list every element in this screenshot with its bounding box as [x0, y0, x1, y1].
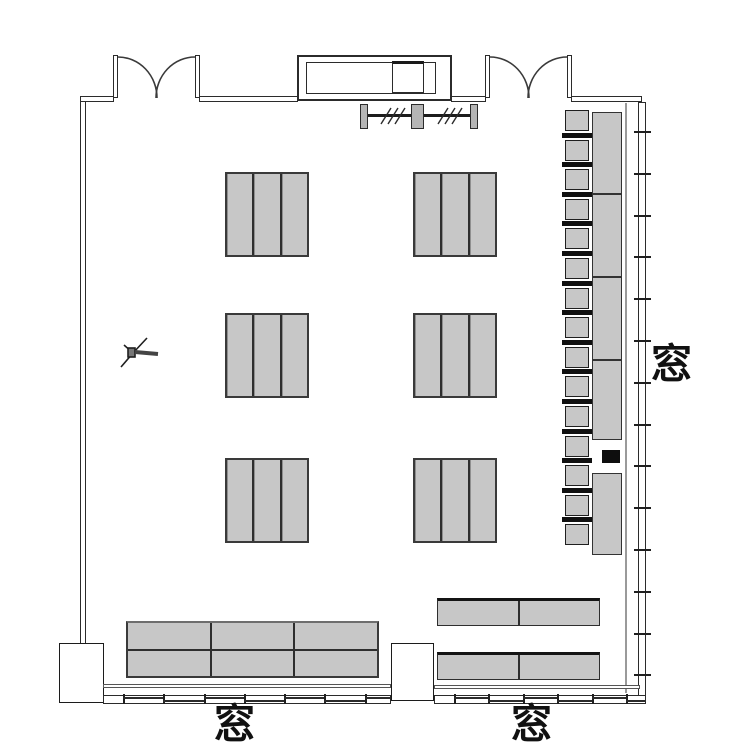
table-cell: [212, 623, 294, 649]
window-sash-line: [284, 697, 324, 699]
window-mullion-tick: [634, 298, 651, 300]
desk-group: [413, 458, 497, 543]
window-mullion-tick: [634, 382, 651, 384]
desk: [254, 315, 279, 396]
chair-seat: [565, 199, 589, 220]
chair-seat: [565, 406, 589, 427]
desk: [442, 460, 467, 541]
window-counter-lower: [592, 473, 622, 555]
counter-segment: [593, 474, 621, 554]
window-sash-line: [244, 700, 284, 702]
door-left-leaf-a: [113, 55, 118, 98]
chair-seat: [565, 436, 589, 457]
door-swing-arc: [490, 57, 529, 98]
chair-seat: [565, 110, 589, 131]
table-cell: [295, 623, 377, 649]
window-mullion-tick: [634, 173, 651, 175]
door-right-leaf-a: [485, 55, 490, 98]
desk: [254, 174, 279, 255]
window-mullion-tick: [634, 215, 651, 217]
window-mullion-tick: [634, 131, 651, 133]
window-sash-line: [324, 700, 364, 702]
window-right-band: [638, 102, 646, 703]
desk-group: [225, 172, 309, 257]
chair-seat: [565, 524, 589, 545]
chair-backrest: [562, 310, 592, 315]
chair-backrest: [562, 281, 592, 286]
window-label-bottom-left: 窓: [214, 704, 255, 745]
chair-backrest: [562, 369, 592, 374]
partition-post-left: [360, 104, 368, 129]
desk-group: [413, 172, 497, 257]
window-sash-line: [123, 697, 163, 699]
chair-backrest: [562, 517, 592, 522]
door-left-leaf-b: [195, 55, 200, 98]
door-swing-arc: [156, 57, 195, 98]
window-mullion-tick: [634, 465, 651, 467]
desk-group: [413, 313, 497, 398]
counter-segment: [593, 361, 621, 439]
chair-backrest: [562, 340, 592, 345]
window-mullion-tick: [454, 694, 456, 704]
table-cell: [128, 623, 210, 649]
door-swing-arc: [118, 57, 157, 98]
chair-seat: [565, 465, 589, 486]
desk: [254, 460, 279, 541]
window-sash-line: [454, 697, 488, 699]
wall-top-seg4: [571, 96, 642, 102]
chair-seat: [565, 140, 589, 161]
desk-group: [225, 458, 309, 543]
partition-post-mid: [411, 104, 424, 129]
table-cell: [520, 655, 600, 679]
pillar-bottom-middle: [391, 643, 434, 701]
desk: [415, 315, 440, 396]
desk: [442, 315, 467, 396]
projector-icon: [128, 348, 135, 357]
window-sash-line: [204, 697, 244, 699]
window-mullion-tick: [488, 694, 490, 704]
window-mullion-tick: [634, 424, 651, 426]
chair-seat: [565, 169, 589, 190]
right-wall-inner-line: [625, 103, 627, 693]
table-cell: [128, 651, 210, 677]
window-bottom-left-sill: [103, 684, 391, 688]
bottom-right-table-2: [437, 652, 600, 680]
window-label-right: 窓: [651, 344, 692, 385]
chair-seat: [565, 228, 589, 249]
desk: [227, 315, 252, 396]
window-mullion-tick: [123, 694, 125, 704]
chair-backrest: [562, 458, 592, 463]
wall-top-seg3: [451, 96, 486, 102]
window-mullion-tick: [244, 694, 246, 704]
window-mullion-tick: [634, 507, 651, 509]
door-right-leaf-b: [567, 55, 572, 98]
window-mullion-tick: [634, 591, 651, 593]
desk: [470, 460, 495, 541]
window-mullion-tick: [324, 694, 326, 704]
desk: [282, 174, 307, 255]
window-sash-line: [592, 697, 626, 699]
wall-top-seg2: [199, 96, 298, 102]
wall-top-seg1: [80, 96, 114, 102]
table-cell: [438, 601, 518, 625]
table-cell: [438, 655, 518, 679]
window-sash-line: [365, 697, 391, 699]
window-mullion-tick: [592, 694, 594, 704]
counter-segment: [593, 278, 621, 359]
table-cell: [295, 651, 377, 677]
chair-backrest: [562, 399, 592, 404]
window-sash-line: [163, 700, 203, 702]
desk: [227, 174, 252, 255]
window-label-bottom-right: 窓: [511, 704, 552, 745]
chair-backrest: [562, 221, 592, 226]
desk: [415, 174, 440, 255]
partition-post-right: [470, 104, 478, 129]
desk: [282, 315, 307, 396]
window-mullion-tick: [204, 694, 206, 704]
chair-seat: [565, 288, 589, 309]
desk-group: [225, 313, 309, 398]
window-mullion-tick: [634, 633, 651, 635]
door-swing-arc: [528, 57, 567, 98]
window-mullion-tick: [163, 694, 165, 704]
counter-segment: [593, 113, 621, 193]
floor-plan: 窓 窓 窓: [0, 0, 750, 750]
window-sash-line: [488, 700, 522, 702]
chair-seat: [565, 317, 589, 338]
alcove-cabinet: [392, 61, 424, 93]
table-cell: [212, 651, 294, 677]
window-mullion-tick: [523, 694, 525, 704]
pillar-bottom-left: [59, 643, 104, 703]
chair-backrest: [562, 429, 592, 434]
window-mullion-tick: [634, 549, 651, 551]
window-mullion-tick: [634, 340, 651, 342]
window-sash-line: [626, 700, 646, 702]
chair-seat: [565, 495, 589, 516]
window-sash-line: [557, 700, 591, 702]
projector-icon: [121, 338, 147, 367]
projector-icon: [135, 352, 158, 354]
chair-backrest: [562, 192, 592, 197]
window-sash-line: [523, 697, 557, 699]
window-counter-upper: [592, 112, 622, 440]
desk: [442, 174, 467, 255]
window-mullion-tick: [284, 694, 286, 704]
equipment-box: [602, 450, 620, 463]
chair-seat: [565, 376, 589, 397]
table-cell: [520, 601, 600, 625]
counter-segment: [593, 195, 621, 276]
window-mullion-tick: [634, 256, 651, 258]
window-bottom-right-sill: [434, 685, 640, 689]
desk: [282, 460, 307, 541]
window-mullion-tick: [634, 674, 651, 676]
desk: [415, 460, 440, 541]
back-table-block: [126, 621, 379, 678]
chair-seat: [565, 258, 589, 279]
window-mullion-tick: [365, 694, 367, 704]
chair-backrest: [562, 133, 592, 138]
chair-backrest: [562, 162, 592, 167]
desk: [227, 460, 252, 541]
window-mullion-tick: [557, 694, 559, 704]
chair-seat: [565, 347, 589, 368]
bottom-right-table-1: [437, 598, 600, 626]
wall-left: [80, 96, 86, 644]
chair-backrest: [562, 251, 592, 256]
desk: [470, 315, 495, 396]
window-mullion-tick: [626, 694, 628, 704]
chair-backrest: [562, 488, 592, 493]
desk: [470, 174, 495, 255]
